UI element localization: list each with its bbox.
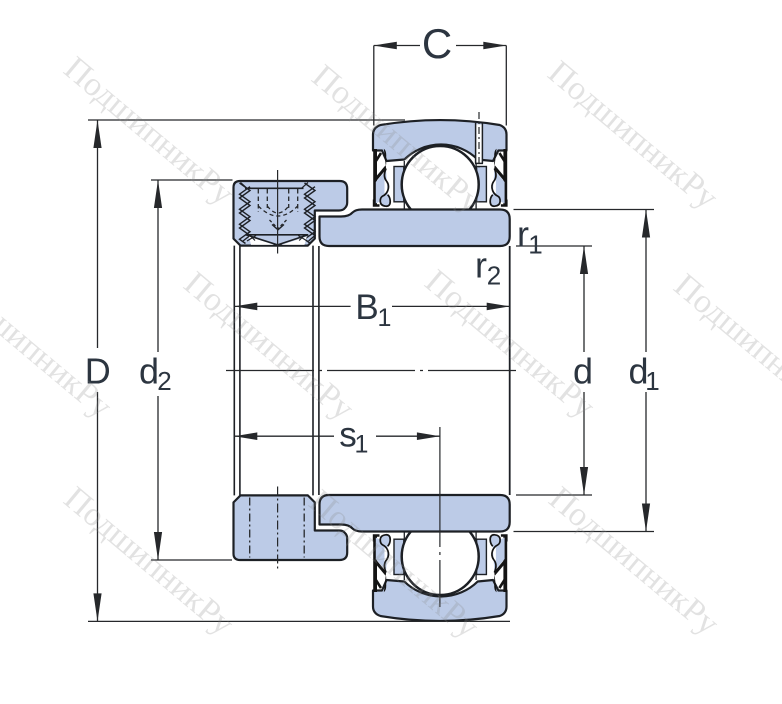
svg-text:B: B: [355, 288, 378, 327]
svg-text:1: 1: [378, 304, 392, 332]
svg-text:2: 2: [487, 261, 501, 291]
svg-text:2: 2: [157, 366, 171, 396]
svg-text:C: C: [422, 20, 452, 67]
svg-text:r: r: [475, 245, 487, 286]
svg-text:d: d: [139, 351, 159, 392]
svg-text:1: 1: [355, 431, 369, 459]
svg-text:r: r: [517, 214, 529, 255]
svg-text:1: 1: [645, 366, 659, 396]
svg-text:1: 1: [528, 230, 542, 260]
